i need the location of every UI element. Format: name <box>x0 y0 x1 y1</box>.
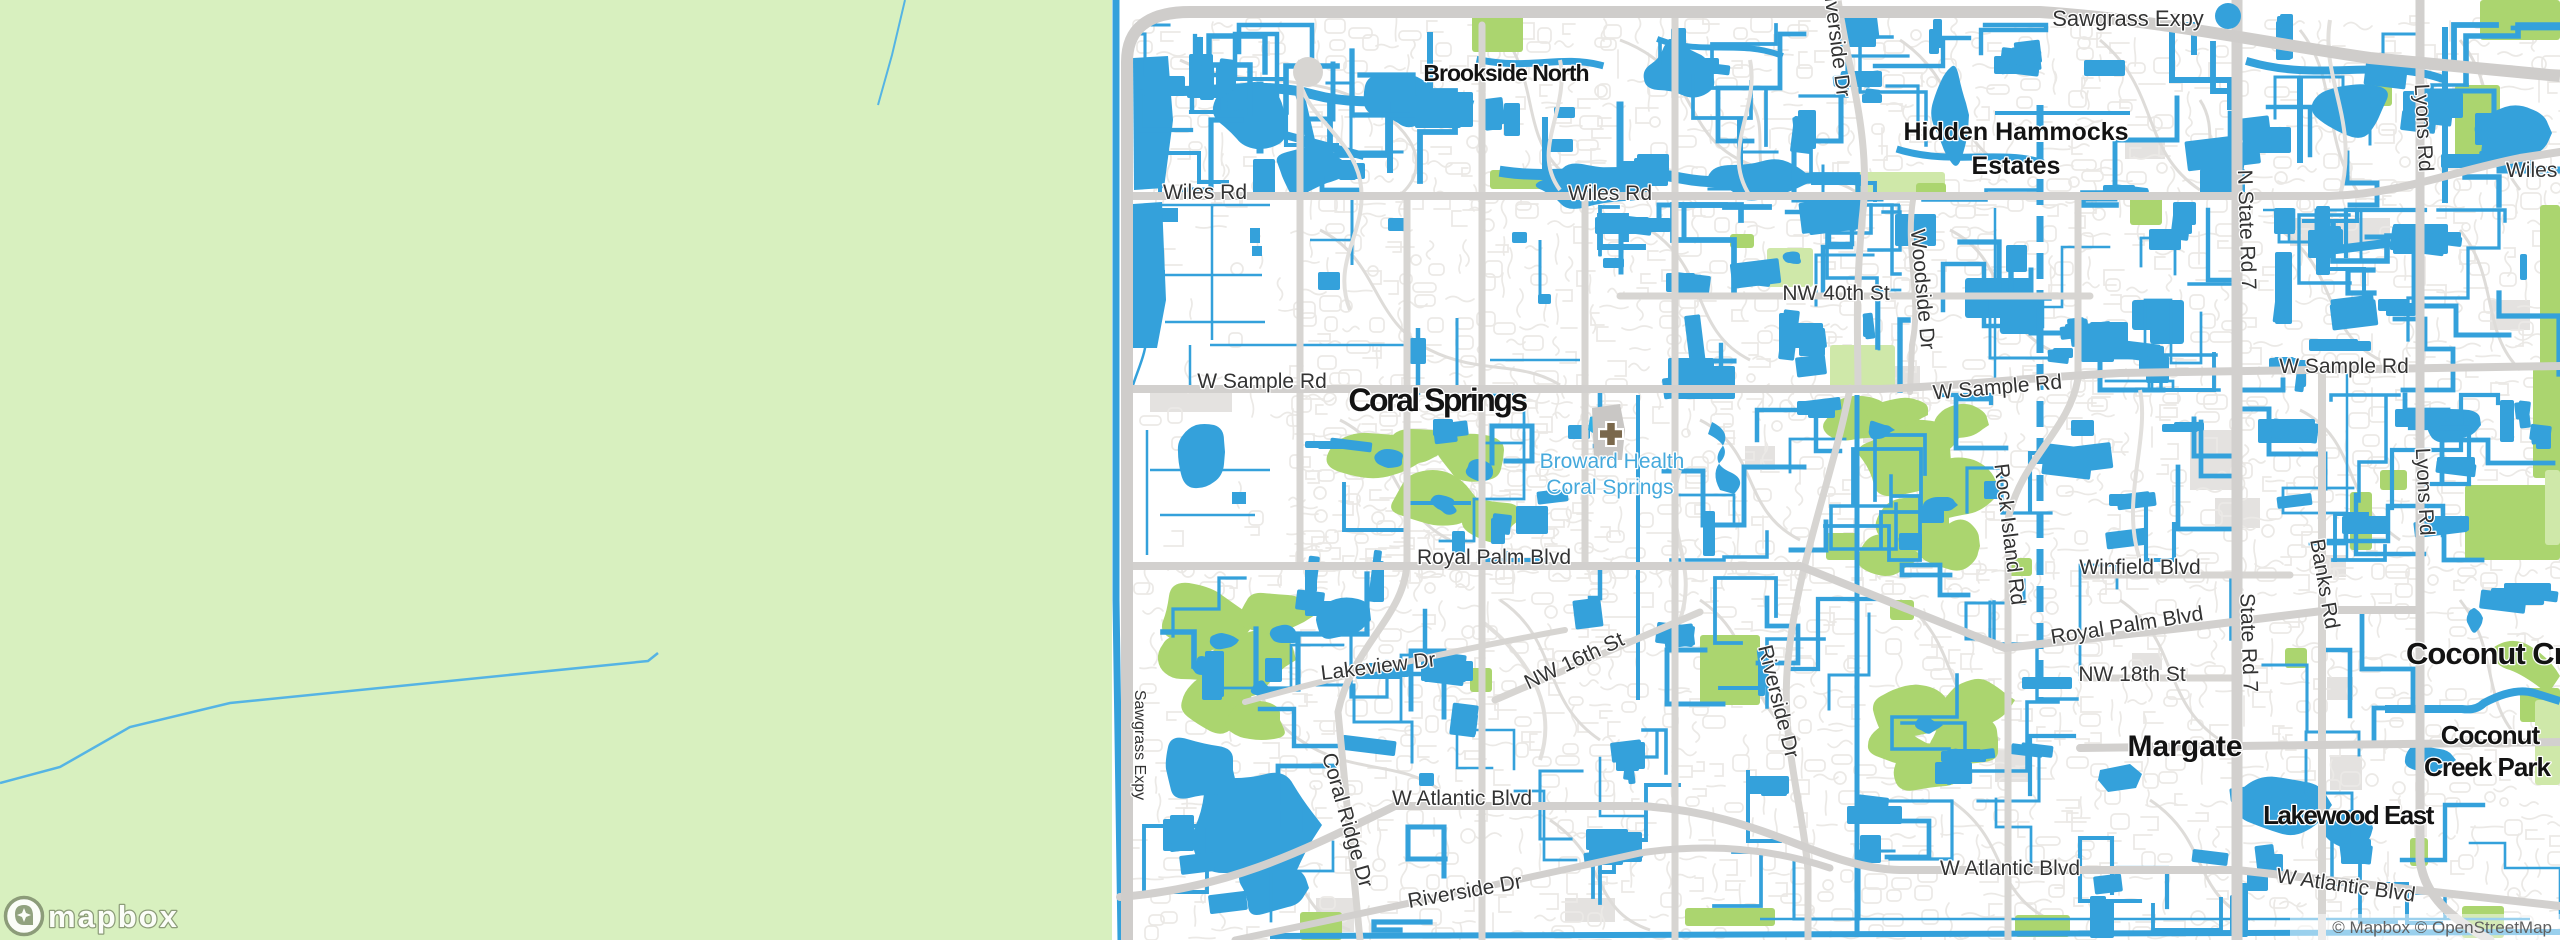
svg-text:Coconut Cre: Coconut Cre <box>2406 636 2560 671</box>
svg-text:© Mapbox © OpenStreetMap: © Mapbox © OpenStreetMap <box>2332 918 2552 937</box>
svg-text:Sawgrass Expy: Sawgrass Expy <box>2052 6 2204 31</box>
svg-text:Hidden Hammocks: Hidden Hammocks <box>1903 118 2128 146</box>
svg-text:Sawgrass Expy: Sawgrass Expy <box>1131 690 1148 800</box>
svg-text:Coconut: Coconut <box>2441 720 2541 750</box>
svg-text:W Sample Rd: W Sample Rd <box>2279 355 2409 378</box>
svg-text:Lyons Rd: Lyons Rd <box>2411 447 2439 536</box>
svg-text:State Rd 7: State Rd 7 <box>2235 593 2261 693</box>
svg-text:mapbox: mapbox <box>48 899 179 934</box>
svg-text:Wiles Rd: Wiles Rd <box>1163 181 1247 204</box>
svg-text:Lyons Rd: Lyons Rd <box>2410 83 2438 172</box>
svg-text:Brookside North: Brookside North <box>1423 60 1588 86</box>
svg-text:Lakewood East: Lakewood East <box>2263 800 2435 830</box>
svg-text:Royal Palm Blvd: Royal Palm Blvd <box>1417 546 1571 569</box>
svg-text:Wiles Rd: Wiles Rd <box>2506 159 2560 182</box>
svg-text:W Atlantic Blvd: W Atlantic Blvd <box>1392 787 1532 810</box>
svg-text:N State Rd 7: N State Rd 7 <box>2233 169 2260 290</box>
svg-text:NW 40th St: NW 40th St <box>1782 282 1890 305</box>
svg-text:W Atlantic Blvd: W Atlantic Blvd <box>1940 857 2080 880</box>
svg-text:Coral Springs: Coral Springs <box>1348 382 1527 418</box>
svg-text:W Sample Rd: W Sample Rd <box>1197 370 1327 393</box>
svg-text:Wiles Rd: Wiles Rd <box>1568 182 1652 205</box>
svg-text:Margate: Margate <box>2127 730 2242 763</box>
svg-text:Estates: Estates <box>1972 152 2061 180</box>
svg-text:Coral Springs: Coral Springs <box>1546 476 1673 499</box>
svg-text:NW 18th St: NW 18th St <box>2078 663 2186 686</box>
svg-text:Creek Park: Creek Park <box>2424 752 2551 782</box>
svg-text:Broward Health: Broward Health <box>1540 450 1685 473</box>
svg-text:Winfield Blvd: Winfield Blvd <box>2079 556 2200 579</box>
